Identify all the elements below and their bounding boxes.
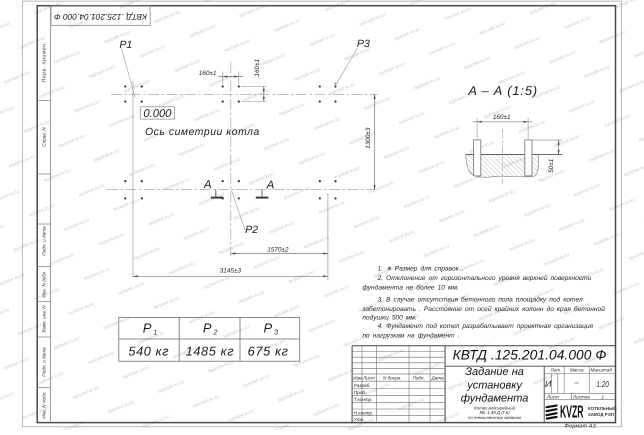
- svg-text:И: И: [545, 379, 552, 389]
- svg-text:Формат А3: Формат А3: [565, 424, 596, 430]
- svg-text:P1: P1: [119, 39, 132, 51]
- svg-text:КВТД .125.201.04.000 Ф: КВТД .125.201.04.000 Ф: [453, 347, 607, 362]
- svg-text:Справ. N: Справ. N: [42, 127, 47, 147]
- svg-text:Лист: Лист: [546, 395, 559, 400]
- svg-text:установку: установку: [466, 379, 523, 391]
- svg-text:3145±3: 3145±3: [220, 268, 242, 275]
- svg-text:Проб.: Проб.: [354, 390, 366, 395]
- svg-text:Инв. N дубл.: Инв. N дубл.: [42, 270, 47, 297]
- svg-text:1:20: 1:20: [596, 379, 609, 389]
- svg-text:A: A: [266, 180, 275, 192]
- svg-text:–: –: [573, 378, 579, 387]
- svg-text:Ось симетрии котла: Ось симетрии котла: [145, 127, 260, 138]
- svg-text:Т.контр.: Т.контр.: [354, 397, 373, 402]
- svg-text:Дата: Дата: [431, 376, 445, 381]
- svg-text:Масса: Масса: [570, 367, 584, 372]
- svg-text:540 кг: 540 кг: [128, 344, 169, 359]
- svg-text:КОТЕЛЬНЫЙ: КОТЕЛЬНЫЙ: [588, 406, 617, 411]
- svg-text:КВТД .125.201.04.000 Ф: КВТД .125.201.04.000 Ф: [54, 12, 147, 21]
- svg-text:N докум.: N докум.: [383, 376, 402, 381]
- svg-text:Изм.Лист: Изм.Лист: [353, 376, 375, 381]
- svg-text:A: A: [203, 179, 212, 191]
- svg-text:P3: P3: [357, 38, 370, 50]
- svg-text:0.000: 0.000: [143, 108, 172, 120]
- svg-text:1: 1: [602, 395, 605, 400]
- svg-text:3. В случае отсутствия бетонно: 3. В случае отсутствия бетонного пола пл…: [378, 296, 583, 303]
- svg-text:Н.контр.: Н.контр.: [354, 410, 373, 415]
- svg-text:забетонировать . Расстояние от: забетонировать . Расстояние от осей край…: [361, 306, 605, 313]
- svg-text:подушки 500 мм.: подушки 500 мм.: [362, 314, 417, 321]
- svg-text:Утв.: Утв.: [354, 417, 364, 422]
- svg-text:фундамента: фундамента: [461, 393, 529, 405]
- svg-text:Перв. примен.: Перв. примен.: [42, 42, 48, 83]
- svg-text:по техническому заданию: по техническому заданию: [468, 415, 522, 420]
- svg-text:1570±2: 1570±2: [267, 247, 289, 254]
- svg-text:50±1: 50±1: [548, 158, 555, 173]
- svg-text:1485 кг: 1485 кг: [186, 344, 235, 359]
- svg-text:по нагрузкам на фундамент .: по нагрузкам на фундамент .: [362, 332, 459, 339]
- svg-text:фундамента не более 10 мм.: фундамента не более 10 мм.: [362, 285, 459, 292]
- svg-text:1300±3: 1300±3: [365, 127, 372, 149]
- svg-text:2. Отклонение от горизонтально: 2. Отклонение от горизонтального уровня …: [377, 275, 592, 282]
- svg-text:Задание на: Задание на: [465, 366, 524, 378]
- svg-text:Листов: Листов: [572, 395, 590, 400]
- svg-text:Подп.: Подп.: [413, 376, 425, 381]
- svg-text:A – A (1:5): A – A (1:5): [467, 83, 538, 98]
- svg-text:Разраб.: Разраб.: [354, 383, 371, 388]
- svg-text:160±1: 160±1: [254, 58, 261, 76]
- svg-text:Подп. и дата: Подп. и дата: [42, 226, 47, 256]
- svg-text:160±1: 160±1: [493, 114, 511, 121]
- svg-text:Инв. N подл.: Инв. N подл.: [42, 391, 47, 418]
- svg-text:ЗАВОД РЭП: ЗАВОД РЭП: [588, 412, 614, 417]
- svg-text:Подп. и дата: Подп. и дата: [42, 347, 47, 377]
- svg-text:Лит.: Лит.: [550, 367, 562, 372]
- svg-text:675 кг: 675 кг: [248, 344, 289, 359]
- svg-text:KVZR: KVZR: [560, 401, 584, 421]
- svg-text:P2: P2: [245, 224, 258, 236]
- svg-text:Масштаб: Масштаб: [591, 367, 613, 372]
- svg-text:4. Фундамент под котел разраба: 4. Фундамент под котел разрабатывает про…: [378, 323, 594, 330]
- svg-text:Взам. инв. N: Взам. инв. N: [42, 305, 47, 333]
- svg-text:1. ∗ Размер для справок .: 1. ∗ Размер для справок .: [378, 265, 464, 272]
- svg-text:160±1: 160±1: [199, 70, 217, 77]
